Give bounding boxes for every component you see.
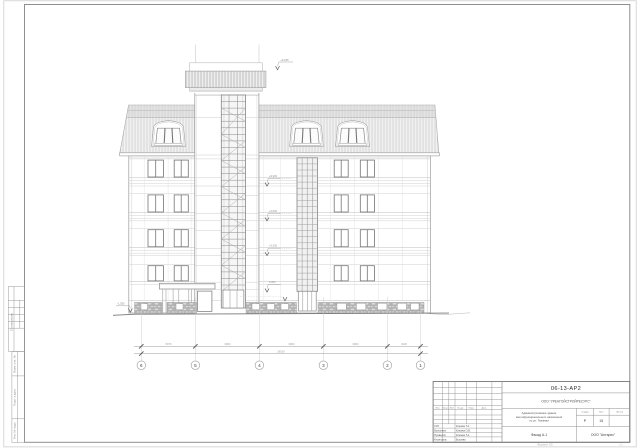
svg-text:Выполнил: Выполнил bbox=[434, 430, 446, 433]
svg-text:Взам. инв. №: Взам. инв. № bbox=[13, 355, 17, 372]
svg-text:6000: 6000 bbox=[353, 342, 359, 346]
svg-text:06-13-АР2: 06-13-АР2 bbox=[551, 386, 581, 392]
svg-text:Клюева О.В.: Клюева О.В. bbox=[456, 430, 471, 433]
svg-text:2: 2 bbox=[386, 363, 389, 368]
svg-text:6: 6 bbox=[140, 363, 143, 368]
svg-text:Проверил: Проверил bbox=[434, 434, 446, 437]
svg-text:Н.контроль: Н.контроль bbox=[434, 438, 448, 441]
svg-text:15: 15 bbox=[599, 419, 603, 423]
svg-text:Кол.уч.: Кол.уч. bbox=[442, 407, 449, 409]
svg-text:+6,600: +6,600 bbox=[269, 209, 278, 213]
svg-text:0,000: 0,000 bbox=[269, 280, 276, 284]
svg-text:Фасад А-1: Фасад А-1 bbox=[531, 433, 547, 437]
svg-text:№ док.: № док. bbox=[457, 406, 464, 409]
svg-text:3120: 3120 bbox=[401, 342, 407, 346]
svg-text:Подп. и дата: Подп. и дата bbox=[13, 389, 17, 406]
svg-text:6000: 6000 bbox=[225, 342, 231, 346]
svg-text:Бышева: Бышева bbox=[456, 438, 466, 441]
svg-text:4: 4 bbox=[258, 363, 261, 368]
svg-text:5: 5 bbox=[194, 363, 197, 368]
svg-text:ООО "УРЕНГОЙСТРОЙРЕСУРС": ООО "УРЕНГОЙСТРОЙРЕСУРС" bbox=[541, 399, 590, 403]
svg-text:Стадия: Стадия bbox=[581, 411, 589, 413]
svg-text:Согласовано: Согласовано bbox=[10, 313, 14, 331]
svg-text:Листов: Листов bbox=[616, 411, 624, 413]
svg-text:Лист: Лист bbox=[599, 411, 604, 413]
svg-text:5070: 5070 bbox=[166, 342, 172, 346]
svg-text:+13,86: +13,86 bbox=[281, 58, 290, 62]
svg-text:+9,900: +9,900 bbox=[269, 174, 278, 178]
svg-text:-1,350: -1,350 bbox=[117, 302, 125, 306]
svg-text:Инв. № подл.: Инв. № подл. bbox=[13, 422, 17, 440]
svg-text:1: 1 bbox=[419, 363, 422, 368]
svg-text:Формат А3: Формат А3 bbox=[537, 443, 552, 447]
svg-text:Клюева Т.А.: Клюева Т.А. bbox=[456, 434, 470, 437]
svg-text:Лист: Лист bbox=[450, 407, 454, 409]
svg-text:Подп.: Подп. bbox=[469, 407, 475, 409]
svg-text:3: 3 bbox=[322, 363, 325, 368]
svg-text:ООО "Антарес": ООО "Антарес" bbox=[591, 433, 616, 437]
svg-text:ГАП: ГАП bbox=[434, 425, 439, 428]
svg-text:+3,300: +3,300 bbox=[269, 244, 278, 248]
svg-text:Изм.: Изм. bbox=[436, 407, 441, 409]
svg-text:к.1: к.1 bbox=[619, 443, 623, 447]
svg-text:Клюева Т.А.: Клюева Т.А. bbox=[456, 425, 470, 428]
svg-text:6000: 6000 bbox=[289, 342, 295, 346]
svg-text:по ул. Таежная: по ул. Таежная bbox=[529, 419, 549, 423]
svg-text:26190: 26190 bbox=[277, 350, 285, 354]
